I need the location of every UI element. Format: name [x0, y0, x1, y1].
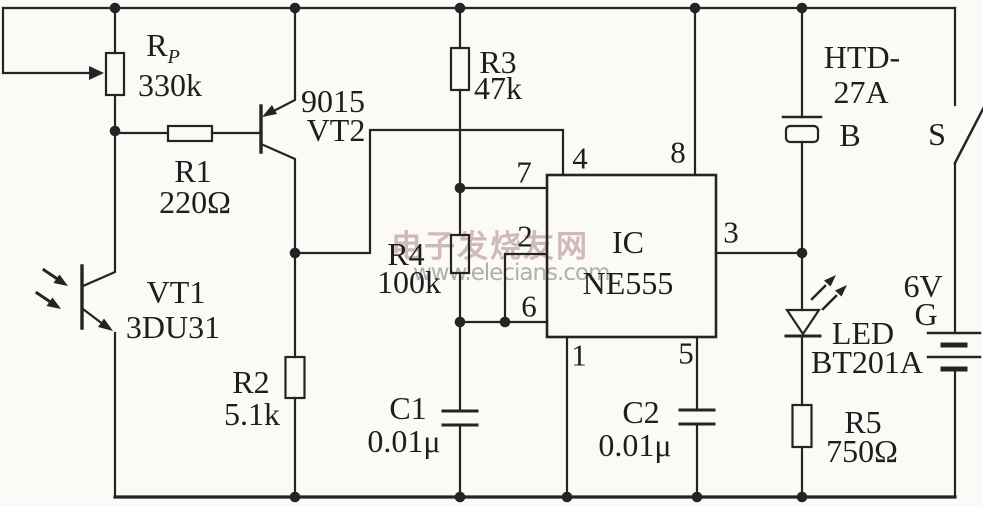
label-vt1-name: VT1: [147, 276, 206, 308]
schematic-canvas: 电子发烧友网 www.elecians.com: [0, 0, 983, 506]
pin-label-3: 3: [723, 217, 739, 248]
npn-emitter-arrow-icon: [98, 319, 113, 332]
label-rp-value: 330k: [138, 69, 202, 101]
resistor-r4-symbol: [451, 187, 469, 322]
pin-label-4: 4: [572, 143, 588, 174]
resistor-r5-symbol: [793, 405, 812, 497]
switch-s-symbol: [955, 8, 983, 163]
pin-label-8: 8: [670, 137, 686, 168]
label-r3-value: 47k: [474, 72, 522, 104]
junction-dots: [110, 3, 808, 503]
label-c2-name: C2: [622, 396, 659, 428]
pin-label-6: 6: [521, 291, 537, 322]
pin-label-2: 2: [517, 221, 533, 252]
label-ic-name: IC: [612, 226, 644, 258]
label-buzzer-ref: B: [839, 119, 860, 151]
pnp-emitter-arrow-icon: [262, 105, 277, 117]
label-ic-value: NE555: [583, 267, 674, 299]
label-r1-value: 220Ω: [159, 186, 231, 218]
label-r1-name: R1: [174, 155, 211, 187]
resistor-r3-symbol: [451, 8, 469, 187]
label-rp-name: RP: [146, 29, 180, 67]
potentiometer-rp-symbol: [3, 8, 124, 131]
label-buzzer-line2: 27A: [833, 76, 888, 108]
buzzer-b-symbol: [783, 8, 821, 253]
resistor-r2-symbol: [286, 253, 305, 497]
transistor-vt2-symbol: [261, 8, 295, 253]
rp-subscript: P: [168, 46, 180, 68]
label-c2-value: 0.01μ: [598, 429, 671, 461]
label-r4-value: 100k: [377, 266, 441, 298]
pin-label-7: 7: [516, 157, 532, 188]
label-vt1-value: 3DU31: [126, 311, 220, 343]
led-light-arrow-icon: [824, 275, 836, 287]
label-r2-value: 5.1k: [224, 398, 280, 430]
label-battery-ref: G: [914, 298, 937, 330]
wiper-arrow-icon: [89, 66, 104, 80]
pin-label-5: 5: [678, 338, 694, 369]
rp-letter: R: [146, 27, 167, 63]
label-vt2-name: VT2: [307, 114, 366, 146]
phototransistor-vt1-symbol: [37, 131, 115, 497]
label-led-value: BT201A: [811, 346, 923, 378]
label-r2-name: R2: [232, 366, 269, 398]
label-c1-name: C1: [389, 392, 426, 424]
led-light-arrow-icon: [835, 285, 847, 297]
resistor-r1-symbol: [115, 126, 261, 141]
label-c1-value: 0.01μ: [367, 425, 440, 457]
label-buzzer-line1: HTD-: [824, 41, 900, 73]
label-switch-ref: S: [928, 118, 946, 150]
capacitor-c1-symbol: [443, 322, 477, 497]
label-r5-value: 750Ω: [826, 435, 898, 467]
pin-label-1: 1: [571, 340, 587, 371]
